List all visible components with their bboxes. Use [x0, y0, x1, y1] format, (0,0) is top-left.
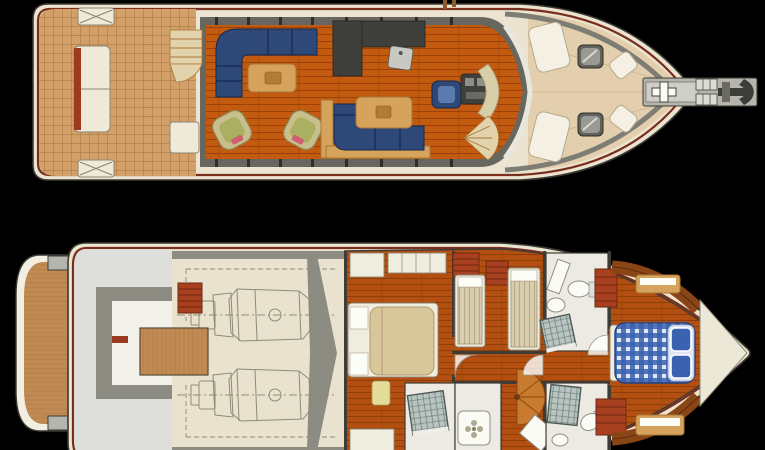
master-wardrobe: [388, 253, 446, 273]
hatch-red-strip: [112, 336, 128, 343]
anchor-platform: [643, 78, 757, 106]
master-bench: [372, 381, 390, 405]
shower-tray-room: [455, 383, 501, 450]
twin-bed-starboard: [508, 268, 540, 350]
vip-bench-fwd: [636, 275, 680, 293]
aft-shower: [547, 385, 581, 426]
swim-platform-support-starboard: [48, 416, 70, 430]
vip-pillow-port: [671, 328, 691, 351]
master-cabinet: [350, 253, 384, 277]
aft-wet-bar-cabinet: [170, 122, 199, 153]
aft-sink: [552, 434, 568, 446]
flag-post: [443, 0, 447, 9]
vip-pillow-starboard: [671, 355, 691, 378]
guest-toilet: [568, 281, 597, 297]
corner-steps-port: [78, 8, 114, 25]
galley-sink: [388, 46, 414, 71]
master-double-bed: [370, 307, 434, 375]
swim-platform-support-port: [48, 256, 70, 270]
twin-bed-port: [455, 275, 485, 347]
engine-room-ladder: [178, 283, 202, 313]
red-locker-2: [486, 261, 508, 285]
red-locker-1: [453, 253, 479, 277]
corner-steps-starboard: [78, 160, 114, 177]
stern-bench-seat: [74, 46, 110, 132]
master-dresser: [350, 429, 394, 450]
flag-post-2: [452, 0, 456, 7]
coffee-table: [248, 64, 296, 92]
deck-hatch-port: [578, 45, 603, 68]
master-ensuite: [405, 383, 455, 450]
swim-platform: [16, 255, 70, 431]
vip-bench-aft: [636, 415, 684, 435]
deck-hatch-starboard: [578, 113, 603, 136]
guest-sink: [547, 298, 565, 312]
main-deck-plan: [0, 0, 765, 225]
lower-deck-plan: [0, 225, 765, 450]
master-pillow-port: [350, 307, 368, 329]
bow-locker-triangle: [700, 300, 747, 406]
master-pillow-starboard: [350, 353, 368, 375]
yacht-deck-plans: [0, 0, 765, 450]
